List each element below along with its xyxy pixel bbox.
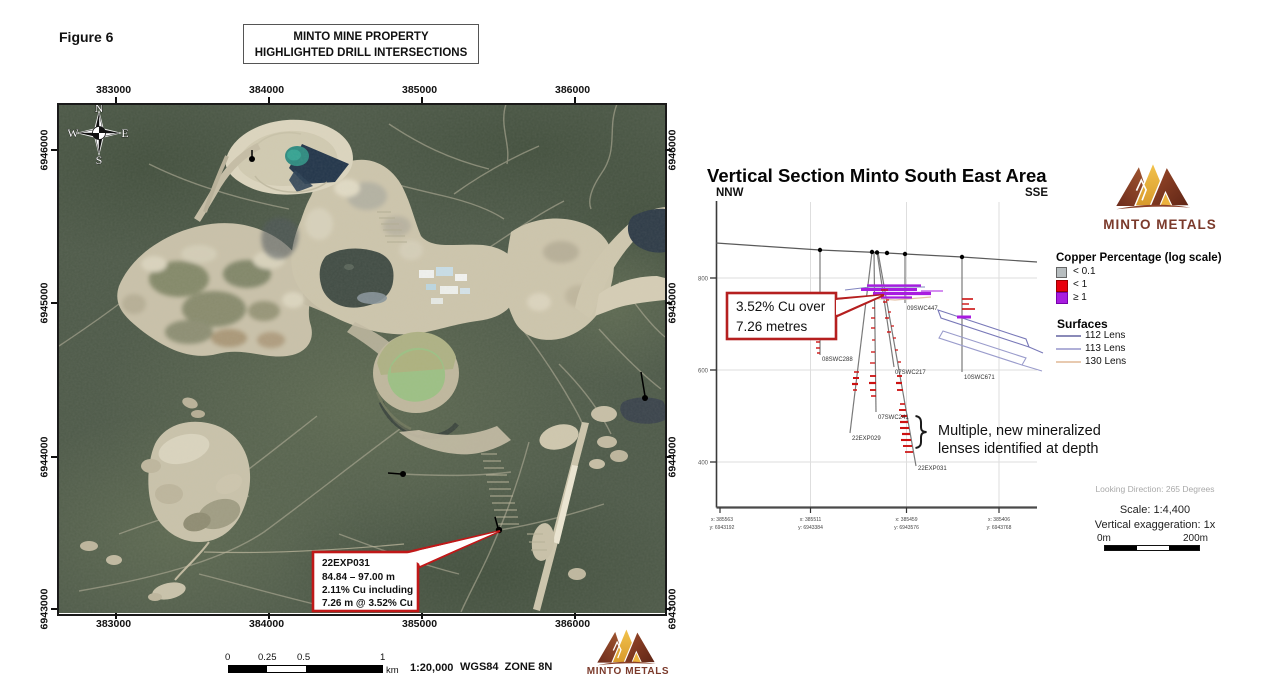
svg-text:800: 800 <box>698 277 709 283</box>
svg-text:3.52% Cu over: 3.52% Cu over <box>736 299 826 314</box>
svg-text:y: 6943576: y: 6943576 <box>894 525 919 531</box>
svg-text:400: 400 <box>698 461 709 467</box>
svg-text:600: 600 <box>698 369 709 375</box>
svg-text:x: 385511: x: 385511 <box>800 517 822 523</box>
svg-text:x: 385459: x: 385459 <box>896 517 918 523</box>
svg-text:7.26 metres: 7.26 metres <box>736 319 808 334</box>
svg-text:22EXP031: 22EXP031 <box>918 466 947 472</box>
svg-text:10SWC671: 10SWC671 <box>964 375 995 381</box>
svg-text:y: 6943768: y: 6943768 <box>987 525 1012 531</box>
svg-text:09SWC447: 09SWC447 <box>907 306 938 312</box>
svg-text:07SWC217: 07SWC217 <box>895 370 926 376</box>
svg-text:08SWC288: 08SWC288 <box>822 357 853 363</box>
svg-text:Multiple, new mineralized: Multiple, new mineralized <box>938 423 1101 439</box>
svg-text:y: 6943384: y: 6943384 <box>798 525 823 531</box>
svg-text:07SWC241: 07SWC241 <box>878 415 909 421</box>
svg-text:y: 6943192: y: 6943192 <box>710 525 735 531</box>
svg-text:22EXP029: 22EXP029 <box>852 436 881 442</box>
svg-text:x: 385406: x: 385406 <box>988 517 1010 523</box>
svg-text:lenses identified at depth: lenses identified at depth <box>938 441 1098 457</box>
svg-text:x: 385563: x: 385563 <box>711 517 733 523</box>
